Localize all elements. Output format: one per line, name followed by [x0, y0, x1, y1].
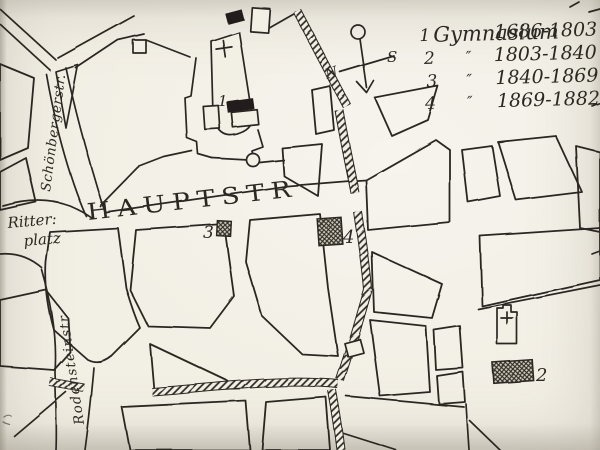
gymnasium-2-building [492, 360, 533, 384]
legend-dates-1: 1686-1803 [494, 18, 598, 43]
legend-num-2: 2 [423, 49, 435, 69]
dark-building [225, 9, 244, 24]
marker-label-1: 1 [218, 92, 228, 110]
gymnasium-4-building [317, 217, 343, 246]
small-building [133, 40, 146, 53]
city-blocks [0, 64, 600, 450]
wall-tower [344, 339, 363, 357]
legend-num-1: 1 [419, 26, 430, 46]
legend-dates-2: 1803-1840 [493, 41, 597, 66]
map-labels: HAUPTSTR Schönbergerstr. Rodensteinstr R… [6, 73, 548, 426]
corner-smudge [3, 415, 11, 424]
hand-drawn-town-map: N S 1 Gymnasium 1686-1803 2 ″ 1803-1840 … [0, 0, 600, 450]
compass-south-label: S [387, 48, 397, 66]
legend-ditto-4: ″ [467, 93, 473, 111]
legend-ditto-3: ″ [466, 71, 472, 89]
legend-dates-4: 1869-1882 [497, 87, 600, 112]
marker-label-4: 4 [342, 227, 354, 248]
marker-label-3: 3 [203, 223, 214, 243]
fountain [247, 154, 260, 167]
church-tower [250, 7, 270, 32]
map-canvas: N S 1 Gymnasium 1686-1803 2 ″ 1803-1840 … [0, 0, 600, 450]
gymnasium-3-building [217, 221, 232, 237]
legend-row-4: 4 ″ 1869-1882 [424, 87, 600, 114]
legend-dates-3: 1840-1869 [495, 64, 599, 89]
legend-num-3: 3 [426, 72, 437, 92]
gymnasium-1-annex [231, 110, 258, 128]
legend-ditto-2: ″ [466, 48, 472, 66]
legend-num-4: 4 [424, 94, 436, 114]
legend: 1 Gymnasium 1686-1803 2 ″ 1803-1840 3 ″ … [419, 18, 600, 114]
place-label-ritterplatz-line2: platz [23, 229, 62, 250]
street-label-schoenbergerstr: Schönbergerstr. [38, 73, 69, 192]
street-label-rodensteinstr: Rodensteinstr [56, 313, 88, 427]
marker-label-2: 2 [535, 365, 547, 386]
